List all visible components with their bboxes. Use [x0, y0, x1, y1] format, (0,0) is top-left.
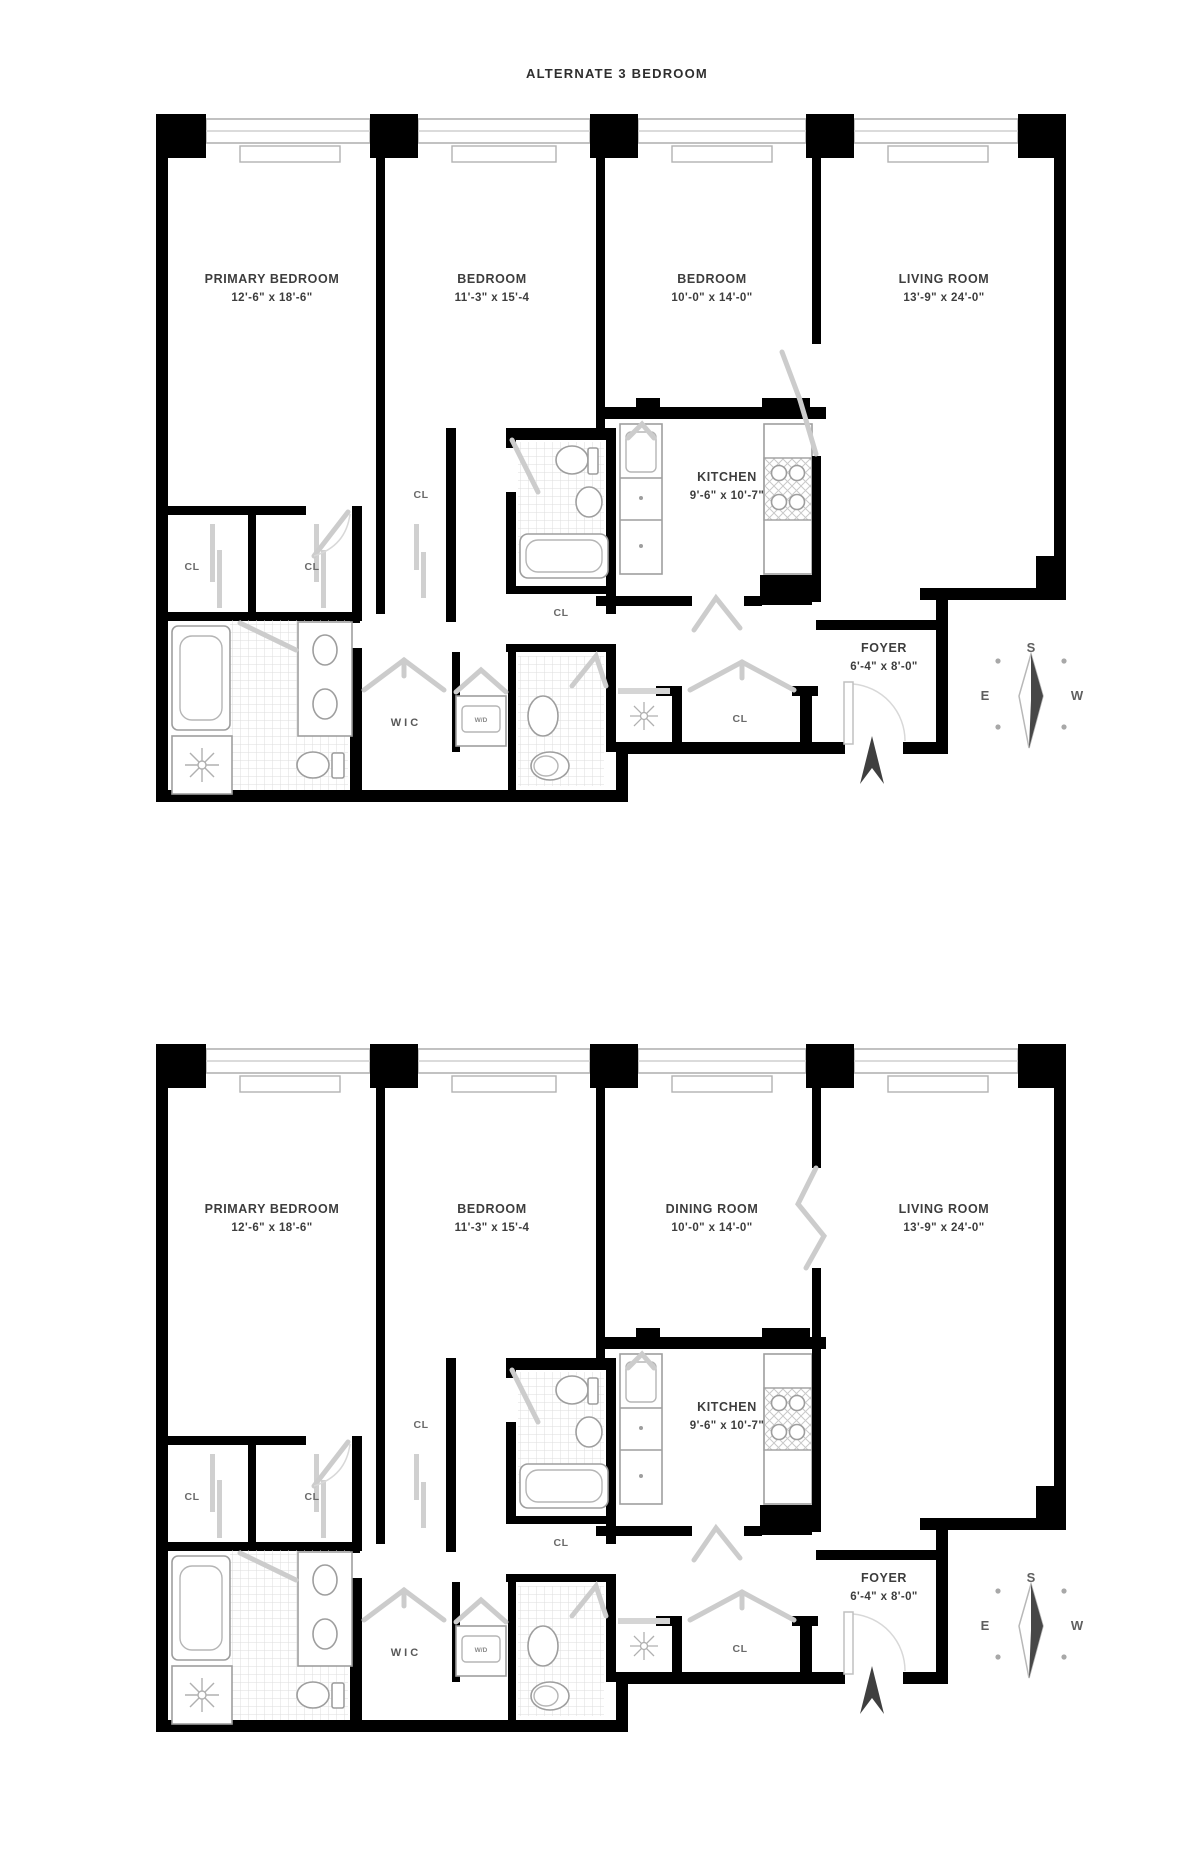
- room-label: DINING ROOM: [666, 1202, 759, 1216]
- room-label: KITCHEN: [697, 1400, 757, 1414]
- room-dims: 13'-9" x 24'-0": [903, 292, 984, 304]
- floor-plan-page: ALTERNATE 3 BEDROOM PRIMARY BEDROOM 12'-…: [0, 0, 1200, 1876]
- washer-dryer-label: W/D: [475, 1647, 488, 1654]
- compass-west-label: W: [1071, 688, 1084, 703]
- closet-label: CL: [305, 561, 320, 573]
- compass-west-label: W: [1071, 1618, 1084, 1633]
- room-label: LIVING ROOM: [899, 272, 990, 286]
- closet-label: CL: [185, 561, 200, 573]
- room-dims: 13'-9" x 24'-0": [903, 1222, 984, 1234]
- compass-south-label: S: [1027, 1570, 1036, 1585]
- plan-lower: PRIMARY BEDROOM 12'-6" x 18'-6" BEDROOM …: [156, 1044, 1084, 1732]
- room-dims: 9'-6" x 10'-7": [690, 490, 764, 502]
- room-label: BEDROOM: [457, 272, 526, 286]
- room-dims: 11'-3" x 15'-4: [455, 292, 530, 304]
- floor-plan-canvas: ALTERNATE 3 BEDROOM PRIMARY BEDROOM 12'-…: [0, 0, 1200, 1876]
- washer-dryer-label: W/D: [475, 717, 488, 724]
- closet-label: CL: [733, 1643, 748, 1655]
- compass-south-label: S: [1027, 640, 1036, 655]
- room-dims: 11'-3" x 15'-4: [455, 1222, 530, 1234]
- room-label: BEDROOM: [677, 272, 746, 286]
- room-label: KITCHEN: [697, 470, 757, 484]
- walk-in-closet-label: WIC: [391, 1647, 421, 1659]
- closet-label: CL: [185, 1491, 200, 1503]
- open-passage-zigzag: [798, 1168, 824, 1268]
- compass-east-label: E: [981, 1618, 990, 1633]
- closet-label: CL: [414, 489, 429, 501]
- room-dims: 6'-4" x 8'-0": [850, 661, 918, 673]
- room-dims: 10'-0" x 14'-0": [671, 292, 752, 304]
- room-label: FOYER: [861, 641, 907, 655]
- room-label: LIVING ROOM: [899, 1202, 990, 1216]
- closet-label: CL: [554, 607, 569, 619]
- plan-upper: PRIMARY BEDROOM 12'-6" x 18'-6" BEDROOM …: [156, 114, 1084, 802]
- room-dims: 12'-6" x 18'-6": [231, 1222, 312, 1234]
- compass-east-label: E: [981, 688, 990, 703]
- room-dims: 12'-6" x 18'-6": [231, 292, 312, 304]
- closet-label: CL: [305, 1491, 320, 1503]
- closet-label: CL: [554, 1537, 569, 1549]
- room-label: PRIMARY BEDROOM: [205, 272, 340, 286]
- room-dims: 9'-6" x 10'-7": [690, 1420, 764, 1432]
- closet-label: CL: [733, 713, 748, 725]
- page-title: ALTERNATE 3 BEDROOM: [526, 66, 708, 81]
- room-dims: 10'-0" x 14'-0": [671, 1222, 752, 1234]
- walk-in-closet-label: WIC: [391, 717, 421, 729]
- room-label: PRIMARY BEDROOM: [205, 1202, 340, 1216]
- room-label: FOYER: [861, 1571, 907, 1585]
- closet-label: CL: [414, 1419, 429, 1431]
- room-dims: 6'-4" x 8'-0": [850, 1591, 918, 1603]
- room-label: BEDROOM: [457, 1202, 526, 1216]
